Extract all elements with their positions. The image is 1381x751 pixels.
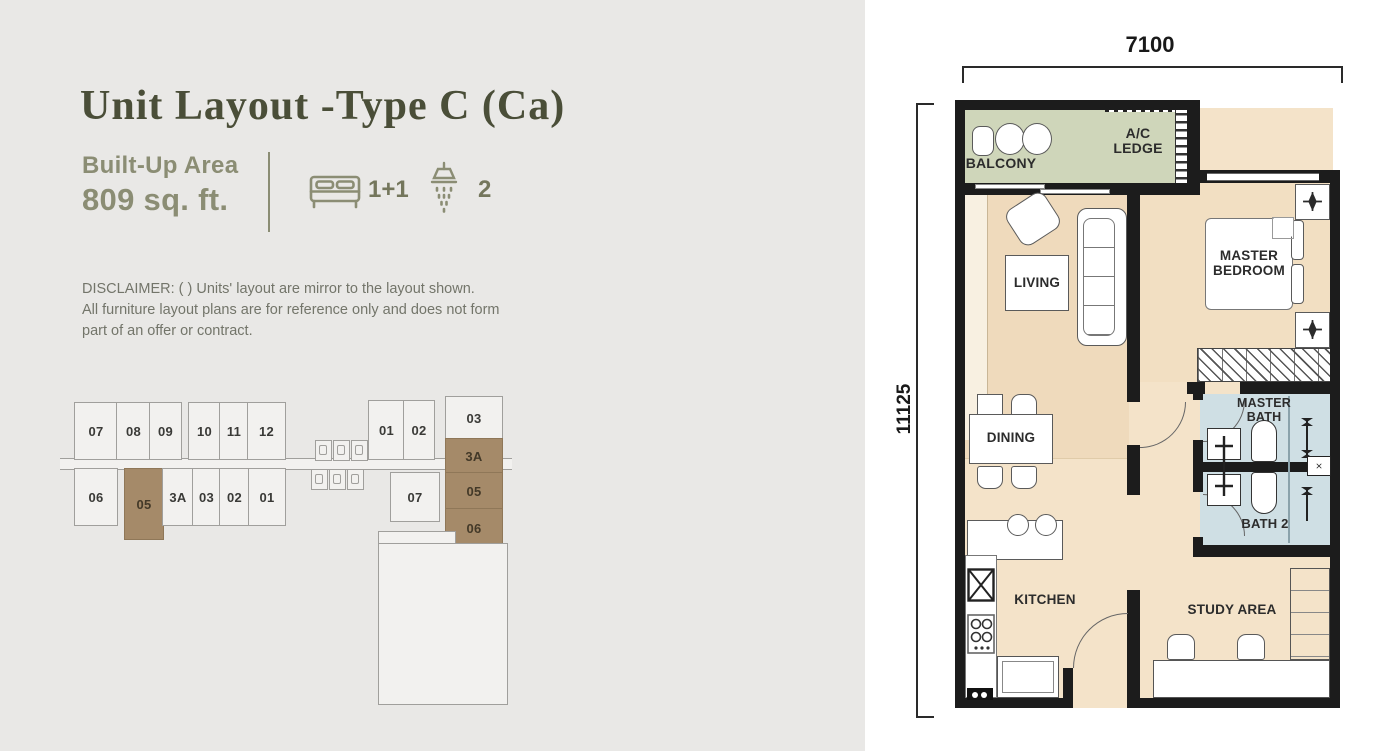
dimension-tick — [916, 103, 934, 105]
entrance-alcove — [1073, 668, 1127, 708]
room-label-dining: DINING — [981, 430, 1041, 445]
wall-segment — [1193, 545, 1340, 557]
keyplan-unit: 12 — [247, 402, 286, 460]
wall-segment — [1127, 183, 1140, 402]
keyplan-unit: 01 — [248, 468, 286, 526]
wall-segment — [1187, 382, 1205, 394]
keyplan-unit: 07 — [390, 472, 440, 522]
floor-plan: ⨯ BALCONY A/C LEDGE — [955, 100, 1340, 708]
sofa-cushions — [1083, 218, 1115, 336]
wall-segment — [1127, 698, 1340, 708]
keyplan-unit: 3A — [162, 468, 194, 526]
page: Unit Layout -Type C (Ca) Built-Up Area 8… — [0, 0, 1381, 751]
wall-segment — [1193, 440, 1203, 492]
keyplan-unit: 02 — [403, 400, 435, 460]
lift-icon — [315, 440, 332, 461]
disclaimer-line: part of an offer or contract. — [82, 321, 500, 342]
sink-bowl — [1007, 514, 1029, 536]
kitchen-cabinet-inner — [1002, 661, 1054, 693]
dimension-line — [962, 66, 1343, 68]
room-label-living: LIVING — [1007, 275, 1067, 290]
keyplan-unit: 02 — [219, 468, 250, 526]
toilet — [1251, 472, 1277, 514]
room-label-master-bedroom: MASTER BEDROOM — [1209, 248, 1289, 278]
study-chair — [1237, 634, 1265, 660]
shower-count: 2 — [478, 176, 491, 204]
wall-segment — [1127, 590, 1140, 708]
room-label-balcony: BALCONY — [959, 156, 1043, 171]
lift-icon — [311, 469, 328, 490]
disclaimer-line: All furniture layout plans are for refer… — [82, 300, 500, 321]
wall-segment — [1193, 394, 1203, 400]
keyplan-unit: 03 — [445, 396, 503, 440]
lift-icon — [329, 469, 346, 490]
faucet-icon — [1215, 436, 1233, 501]
dimension-tick — [962, 66, 964, 83]
blanket-fold — [1273, 218, 1293, 238]
keyplan-unit-highlighted: 05 — [124, 468, 164, 540]
lift-icon — [333, 440, 350, 461]
disclaimer: DISCLAIMER: ( ) Units' layout are mirror… — [82, 279, 500, 342]
keyplan-unit: 11 — [219, 402, 249, 460]
balcony-chair — [1022, 123, 1052, 155]
wall-segment — [955, 100, 1200, 110]
wall-segment — [1127, 445, 1140, 495]
page-title: Unit Layout -Type C (Ca) — [80, 82, 565, 130]
room-label-bath2: BATH 2 — [1230, 516, 1300, 531]
dining-chair — [977, 466, 1003, 489]
appliance — [967, 688, 993, 700]
room-label-ac-ledge: A/C LEDGE — [1105, 126, 1171, 156]
shower-icon — [426, 160, 462, 219]
room-label-kitchen: KITCHEN — [1000, 592, 1090, 607]
dimension-line — [916, 103, 918, 718]
wall-segment — [1193, 537, 1203, 545]
study-desk — [1153, 660, 1330, 698]
room-label-master-bath: MASTER BATH — [1233, 396, 1295, 424]
keyplan-unit: 09 — [149, 402, 182, 460]
keyplan-unit: 07 — [74, 402, 118, 460]
wall-segment — [1063, 668, 1073, 708]
balcony-chair — [972, 126, 994, 156]
sliding-door — [1040, 189, 1110, 194]
wardrobe — [1197, 348, 1333, 382]
toilet — [1251, 420, 1277, 462]
keyplan-unit: 03 — [192, 468, 221, 526]
lift-icon — [351, 440, 368, 461]
keyplan-facility-block — [378, 543, 508, 705]
lamp-icon — [1302, 319, 1323, 345]
wall-segment — [1240, 382, 1340, 394]
stove-icon — [967, 614, 995, 659]
dimension-tick — [916, 716, 934, 718]
lift-icon — [347, 469, 364, 490]
sink-icon — [967, 568, 995, 607]
bed-icon — [308, 170, 362, 215]
keyplan-unit: 08 — [116, 402, 151, 460]
towel-rail-icon — [1299, 486, 1315, 527]
sink-bowl — [1035, 514, 1057, 536]
built-up-value: 809 sq. ft. — [82, 182, 228, 218]
keyplan-unit-highlighted: 05 — [445, 472, 503, 510]
cistern: ⨯ — [1307, 456, 1331, 476]
sliding-door — [975, 184, 1045, 189]
keyplan-unit: 06 — [74, 468, 118, 526]
balcony-table — [995, 123, 1025, 155]
dimension-width: 7100 — [1090, 32, 1210, 58]
built-up-label: Built-Up Area — [82, 152, 238, 180]
dining-chair — [1011, 466, 1037, 489]
dimension-height: 11125 — [894, 364, 916, 454]
bed-count: 1+1 — [368, 176, 409, 204]
pillow — [1291, 264, 1304, 304]
keyplan-unit: 10 — [188, 402, 221, 460]
room-label-study-area: STUDY AREA — [1177, 602, 1287, 617]
window — [1207, 173, 1319, 181]
keyplan-unit: 01 — [368, 400, 405, 460]
disclaimer-line: DISCLAIMER: ( ) Units' layout are mirror… — [82, 279, 500, 300]
divider — [268, 152, 270, 232]
study-chair — [1167, 634, 1195, 660]
keyplan-unit-highlighted: 3A — [445, 438, 503, 474]
key-plan: 07 08 09 10 11 12 06 05 3A 03 02 01 01 0… — [60, 395, 530, 715]
study-cabinet — [1290, 568, 1330, 660]
wall-segment — [1330, 170, 1340, 708]
dimension-tick — [1341, 66, 1343, 83]
lamp-icon — [1302, 191, 1323, 217]
